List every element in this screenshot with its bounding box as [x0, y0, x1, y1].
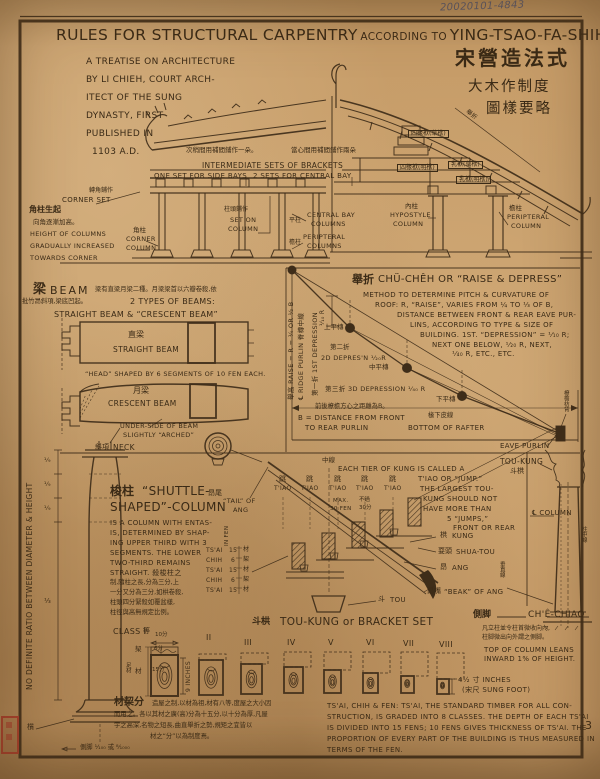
- tiao-cn: 跳: [361, 476, 368, 483]
- cn-title-line: 宋營造法式: [455, 48, 570, 69]
- ang-label: ANG: [452, 565, 469, 572]
- shuttle-body: 制,隨柱之長,分為三分,上: [110, 580, 179, 587]
- height-note: HEIGHT OF COLUMNS: [30, 231, 106, 238]
- max-note: 30 FEN: [330, 507, 352, 513]
- class8-dimension: 4½ 寸 INCHES: [458, 677, 511, 684]
- second-depression: 2D DEPRES'N ¹⁄₂₀R: [321, 355, 386, 362]
- page-title: RULES FOR STRUCTURAL CARPENTRY ACCORDING…: [56, 27, 578, 43]
- kung-label: KUNG: [452, 533, 474, 540]
- ang-tail-cn: 昂尾: [208, 490, 222, 497]
- raise-vertical: 舉高 RAISE = R = ¼ OR ⅓ B: [288, 301, 295, 400]
- tier-note: 5 “JUMPS,”: [447, 516, 488, 523]
- shuttle-title-cn: 梭柱: [110, 485, 134, 498]
- table-cn: 材: [243, 567, 249, 573]
- intro-line: BY LI CHIEH, COURT ARCH-: [86, 76, 215, 85]
- toukung-caption: TOU-KUNG or BRACKET SET: [280, 617, 433, 628]
- crescent-beam-label: CRESCENT BEAM: [108, 400, 177, 408]
- crescent-beam-cn: 月梁: [133, 387, 149, 395]
- toukung-right-cn: 斗栱: [510, 468, 524, 475]
- set-on-column: SET ON: [230, 217, 256, 224]
- tiao-cn: 跳: [279, 476, 286, 483]
- drawing-toukung: [236, 428, 558, 612]
- brackets-side: ONE SET FOR SIDE BAYS: [154, 173, 247, 180]
- table-name: CHIH: [206, 578, 222, 584]
- chechiao-note-cn: 柱脚微出向外謂之側脚。: [482, 635, 548, 641]
- tier-note: T'IAO OR “JUMP.”: [418, 476, 483, 483]
- beam-label-4rafter-rough: 四椽栿(草栿): [408, 130, 449, 138]
- max-note: MAX.: [333, 499, 348, 505]
- no-ratio-vertical: NO DEFINITE RATIO BETWEEN DIAMETER & HEI…: [26, 482, 34, 690]
- neck-cn: 斜項: [95, 444, 109, 451]
- brackets-heading: INTERMEDIATE SETS OF BRACKETS: [202, 162, 343, 170]
- tier-note: EACH TIER OF KUNG IS CALLED A: [338, 466, 465, 473]
- shuttle-title: “SHUTTLE-: [142, 485, 210, 498]
- hypostyle-column: HYPOSTYLE: [390, 212, 431, 219]
- tiao-cn: 跳: [334, 476, 341, 483]
- intro-line: DYNASTY, FIRST: [86, 112, 163, 121]
- class1-cn: 等: [143, 628, 150, 635]
- corner-set-cn: 轉角鋪作: [89, 188, 113, 194]
- fraction-third: ⅓: [44, 598, 51, 605]
- shuttle-body: TWO-THIRD REMAINS: [110, 560, 191, 567]
- underside-note: SLIGHTLY “ARCHED”: [123, 432, 194, 439]
- ang-cn: 昂: [440, 564, 447, 571]
- table-fen: 15: [229, 588, 237, 594]
- head-note: “HEAD” SHAPED BY 6 SEGMENTS OF 10 FEN EA…: [85, 371, 266, 378]
- underside-note: UNDER-SIDE OF BEAM: [120, 423, 198, 430]
- chechiao-note-cn: 凡立柱並令柱首微收向內,: [482, 626, 550, 632]
- ridge-purlin-vertical: ℄ RIDGE PURLIN 脊槫中線: [298, 313, 305, 400]
- page-number: 3: [585, 720, 592, 732]
- red-seal: [1, 716, 19, 754]
- chucheh-body: METHOD TO DETERMINE PITCH & CURVATURE OF: [363, 292, 549, 299]
- b-distance: TO REAR PURLIN: [305, 425, 368, 432]
- beam-types: 2 TYPES OF BEAMS:: [130, 298, 215, 306]
- table-cn: 栔: [243, 577, 249, 583]
- chucheh-body: ROOF: R, “RAISE”, VARIES FROM ¼ TO ⅓ OF …: [375, 302, 553, 309]
- beam-types: STRAIGHT BEAM & “CRESCENT BEAM”: [54, 311, 218, 319]
- shuttle-body: SEGMENTS. THE LOWER: [110, 550, 201, 557]
- lean-note: TOP OF COLUMN LEANS: [484, 647, 574, 654]
- tsaifen-en: TERMS OF THE FEN.: [327, 747, 403, 754]
- table-name: TS'AI: [206, 588, 223, 594]
- tiao-label: T'IAO: [356, 486, 374, 492]
- corner-column-cn: 角柱: [133, 227, 146, 234]
- toukung-right-label: TOU-KUNG: [500, 458, 543, 466]
- upper-purlin-cn: 上平槫: [324, 324, 344, 331]
- class-numeral: II: [206, 634, 211, 642]
- neck-label: NECK: [113, 444, 135, 452]
- straight-beam-label: STRAIGHT BEAM: [113, 346, 179, 354]
- tiao-label: T'IAO: [301, 486, 319, 492]
- tsaifen-en: TS'AI, CHIH & FEN: TS'AI, THE STANDARD T…: [327, 703, 572, 710]
- table-cn: 栔: [243, 557, 249, 563]
- peripteral-columns: PERIPTERAL: [303, 234, 345, 241]
- column-center-vertical: 柱中線: [580, 526, 586, 543]
- tier-note: THE LARGEST TOU-: [420, 486, 494, 493]
- peripteral-columns: COLUMNS: [307, 243, 342, 250]
- table-fen: 6: [231, 578, 235, 584]
- b-distance-cn: 前後橑檐方心之距離為B。: [315, 404, 389, 411]
- tsaifen-cn: 而用之。各以其材之廣(高)分為十五分,以十分為厚,凡屋: [114, 712, 268, 719]
- fraction-ninth: ¹⁄₉: [44, 458, 51, 464]
- table-cn: 材: [243, 547, 249, 553]
- tiao-label: T'IAO: [329, 486, 347, 492]
- straight-beam-cn: 直梁: [128, 331, 144, 339]
- peripteral2-cn: 檐柱: [509, 205, 522, 212]
- hypostyle-column: COLUMN: [393, 221, 423, 228]
- title-name: YING-TSAO-FA-SHIH.: [450, 26, 600, 44]
- title-main: RULES FOR STRUCTURAL CARPENTRY: [56, 26, 358, 44]
- peripteral2-column: PERIPTERAL: [507, 214, 549, 221]
- beam-label-4rafter-exposed: 四椽栿(明栿): [397, 164, 438, 172]
- chucheh-body: LINS, ACCORDING TO TYPE & SIZE OF: [410, 322, 553, 329]
- tiao-cn: 跳: [389, 476, 396, 483]
- class-numeral: VIII: [439, 641, 453, 649]
- beam-desc-cn: 批竹昂斜項,梁底凹起。: [22, 299, 87, 306]
- second-depression-cn: 第二折: [330, 344, 350, 351]
- corner-rise-cn: 角柱生起: [29, 206, 61, 214]
- shuttle-body: 柱徑與高無規定比例。: [110, 610, 173, 617]
- fraction-ninth: ¹⁄₉: [44, 506, 51, 512]
- title-mid: ACCORDING TO: [360, 31, 447, 43]
- peripteral-cn: 檐柱: [289, 240, 301, 246]
- tier-note: KUNG SHOULD NOT: [423, 496, 498, 503]
- shuttle-body: ING UPPER THIRD WITH 3: [110, 540, 207, 547]
- corner-column: COLUMN: [126, 245, 156, 252]
- chucheh-body: ¹⁄₄₀ R, ETC., ETC.: [452, 351, 515, 358]
- full-tsai-cn: 足材: [124, 662, 130, 673]
- leader-lines: [96, 177, 508, 249]
- third-depression: 第三折 3D DEPRESSION ¹⁄₄₀ R: [325, 386, 426, 393]
- corner-rise-cn2: 向角逐漸加高。: [33, 219, 79, 226]
- lower-purlin-cn: 下平槫: [436, 396, 456, 403]
- table-fen: 15: [229, 548, 237, 554]
- shuttle-body: IS A COLUMN WITH ENTAS-: [110, 520, 212, 527]
- height-note: GRADUALLY INCREASED: [30, 243, 115, 250]
- chechiao-ratio-note: 側脚 ¹⁄₁₀₀ 或 ⁸⁄₁₀₀₀: [80, 745, 130, 752]
- rafter-bottom: BOTTOM OF RAFTER: [408, 425, 485, 432]
- tsaifen-cn: 材之“分”以為制度焉。: [150, 734, 213, 741]
- table-fen: 6: [231, 558, 235, 564]
- rafter-bottom-cn: 椽下皮線: [428, 413, 453, 420]
- tsaifen-header-cn: 材栔分: [114, 698, 144, 709]
- width-10fen: 10分: [155, 633, 168, 639]
- intro-line: PUBLISHED IN: [86, 130, 153, 139]
- nine-inches-vertical: 9 INCHES: [186, 661, 192, 692]
- ang-beak-label: “BEAK” OF ANG: [444, 589, 503, 596]
- central-bay-columns: COLUMNS: [311, 221, 346, 228]
- class-numeral: IV: [287, 639, 296, 647]
- set-on-column-cn: 柱頭鋪作: [224, 207, 248, 213]
- tsai-fen: 15分: [152, 668, 165, 674]
- chucheh-body: BUILDING. 1ST. “DEPRESSION” = ¹⁄₁₀ R;: [420, 332, 570, 339]
- tsaifen-en: STRUCTION, IS GRADED INTO 8 CLASSES. THE…: [327, 714, 589, 721]
- tou-cn: 斗: [378, 596, 385, 603]
- class-numeral: VII: [403, 640, 414, 648]
- table-fen: 15: [229, 568, 237, 574]
- central-bay-cn: 平柱: [289, 218, 301, 224]
- shuatou-label: SHUA-TOU: [456, 549, 495, 556]
- chechiao-cn: 側脚: [473, 611, 491, 620]
- table-name: CHIH: [206, 558, 222, 564]
- tiao-label: T'IAO: [384, 486, 402, 492]
- eave-purlin-back-vertical: 橑檐枋背: [562, 390, 568, 412]
- set-on-column: COLUMN: [228, 226, 258, 233]
- class-numeral: V: [328, 639, 334, 647]
- sheet: 20020101-4843 RULES FOR STRUCTURAL CARPE…: [0, 0, 600, 779]
- chih-cn: 栔: [135, 646, 142, 653]
- chucheh-title-cn: 舉折: [352, 274, 374, 286]
- drawing-beams: [62, 318, 262, 465]
- class8-dimension: (宋尺 SUNG FOOT): [462, 687, 530, 694]
- b-distance: B = DISTANCE FROM FRONT: [298, 415, 405, 422]
- chechiao-label: CH'Ê-CHIAO: [528, 611, 585, 620]
- fen-header-vertical: IN FEN: [225, 526, 231, 546]
- beam-label-2rafter-exposed: 乳栿(明栿): [456, 176, 491, 184]
- table-cn: 材: [243, 587, 249, 593]
- tsaifen-en: PROPORTION OF EVERY PART OF THE BUILDING…: [327, 736, 595, 743]
- first-depression-vertical: 第一折 1ST DEPRESSION: [312, 312, 319, 396]
- toukung-caption-cn: 斗栱: [252, 618, 270, 627]
- centerline-cn: 中線: [322, 457, 335, 464]
- central-bay-columns: CENTRAL BAY: [307, 212, 355, 219]
- corner-set-label: CORNER SET: [62, 197, 111, 204]
- beam-desc-cn: 梁有直梁月梁二種。月梁梁首以六瓣卷殺,依: [95, 287, 217, 294]
- tsaifen-cn: 宇之高深,名物之短長,曲直舉折之勢,規矩之宜皆以: [114, 723, 252, 730]
- chucheh-title: CHÜ-CHÊH OR “RAISE & DEPRESS”: [378, 275, 562, 286]
- tsai-cn: 材: [135, 668, 142, 675]
- shuttle-title: SHAPED”-COLUMN: [110, 501, 226, 514]
- table-name: TS'AI: [206, 568, 223, 574]
- class1-label: CLASS I: [113, 628, 146, 636]
- ang-beak-cn: 昂嘴: [427, 588, 441, 595]
- chucheh-body: DISTANCE BETWEEN FRONT & REAR EAVE PUR-: [397, 312, 576, 319]
- shuttle-body: IS, DETERMINED BY SHAP-: [110, 530, 210, 537]
- shuttle-body: 柱頭四分緊殺如覆盆樣,: [110, 600, 175, 607]
- tiao-cn: 跳: [306, 476, 313, 483]
- shuttle-body: STRAIGHT. 殺梭柱之: [110, 570, 182, 577]
- beam-label-2rafter-rough: 乳栿(草栿): [448, 161, 483, 169]
- drawing-timber-classes: [145, 641, 464, 696]
- height-note: TOWARDS CORNER: [30, 255, 98, 262]
- tier-note: HAVE MORE THAN: [423, 506, 492, 513]
- max-note-cn: 不過: [359, 498, 370, 504]
- peripteral2-column: COLUMN: [511, 223, 541, 230]
- brackets-central: 2 SETS FOR CENTRAL BAY: [253, 173, 351, 180]
- plinth-cn: 櫍: [27, 724, 34, 731]
- drawing-chechiao-column: [497, 450, 592, 630]
- tou-label: TOU: [390, 597, 406, 604]
- class-numeral: VI: [366, 639, 375, 647]
- intro-line: ITECT OF THE SUNG: [86, 94, 182, 103]
- cn-title-line: 大木作制度: [468, 80, 551, 95]
- corner-column: CORNER: [126, 236, 156, 243]
- hypostyle-cn: 內柱: [405, 203, 418, 210]
- intro-line: A TREATISE ON ARCHITECTURE: [86, 58, 235, 67]
- beam-header-cn: 梁: [33, 283, 46, 297]
- eave-purlin-label: EAVE PURLIN: [500, 443, 549, 450]
- fraction-ninth: ¹⁄₉: [44, 482, 51, 488]
- ang-tail: “TAIL” OF: [223, 498, 256, 505]
- table-name: TS'AI: [206, 548, 223, 554]
- chucheh-body: NEXT ONE BELOW, ¹⁄₂₀ R, NEXT,: [432, 342, 552, 349]
- tiao-label: T'IAO: [274, 486, 292, 492]
- lean-note: INWARD 1% OF HEIGHT.: [484, 656, 575, 663]
- shuttle-body: 一分又分為三分,如栱卷殺,: [110, 590, 183, 597]
- column-centerline-label: ℄ COLUMN: [532, 510, 572, 517]
- max-note-cn: 30分: [359, 506, 372, 512]
- middle-purlin-cn: 中平槫: [369, 364, 389, 371]
- intro-line: 1103 A.D.: [92, 148, 140, 157]
- class-numeral: III: [244, 639, 252, 647]
- chih-fen: 6分: [154, 647, 163, 653]
- note-central-bay: 當心間用補間鋪作兩朵: [291, 147, 356, 154]
- kung-cn: 栱: [440, 532, 447, 539]
- note-side-bay: 次稍間用補間鋪作一朵。: [186, 147, 258, 154]
- plumb-line-vertical: 垂直線: [498, 561, 504, 578]
- beam-header: BEAM: [50, 285, 90, 297]
- tsaifen-cn: 造屋之制,以材為祖,材有八等,度屋之大小因: [152, 701, 271, 708]
- tsaifen-en: IS DIVIDED INTO 15 FENS; 10 FENS GIVES T…: [327, 725, 587, 732]
- shuatou-cn: 耍頭: [438, 548, 452, 555]
- cn-title-line: 圖樣要略: [486, 102, 552, 117]
- ang-tail: ANG: [233, 507, 248, 514]
